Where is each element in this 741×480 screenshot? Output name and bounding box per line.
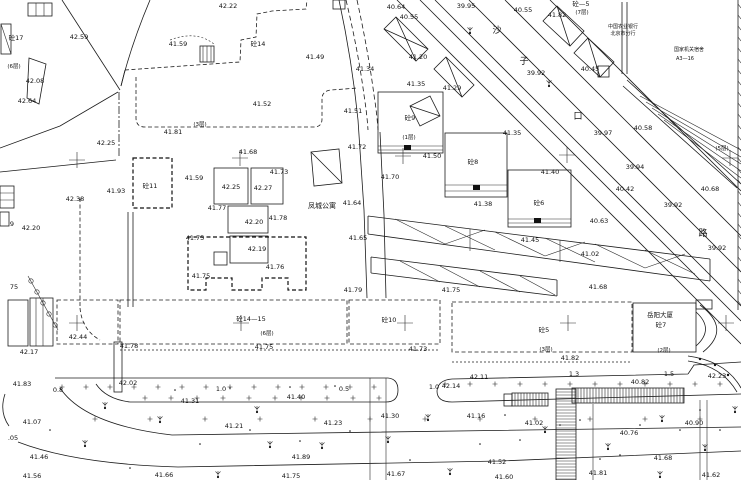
elevation-label: 41.72 xyxy=(348,143,367,151)
elevation-label: 41.59 xyxy=(169,40,188,48)
compound-fence xyxy=(622,2,627,74)
tree-base xyxy=(544,431,546,433)
elevation-label: 40.90 xyxy=(685,419,704,427)
survey-dot xyxy=(334,385,336,387)
tree-base xyxy=(84,445,86,447)
building-label: 砼14—15 xyxy=(236,314,266,323)
misc-label: .05 xyxy=(8,434,18,442)
elevation-label: 41.38 xyxy=(474,200,493,208)
floor-count-note: (5层) xyxy=(715,145,728,152)
misc-label: 9 xyxy=(10,220,14,228)
building-9-outline xyxy=(378,92,443,153)
elevation-label: 41.29 xyxy=(443,84,462,92)
tree-base xyxy=(661,420,663,422)
dimension-label: 1.3 xyxy=(569,370,579,378)
elevation-label: 39.94 xyxy=(626,163,645,171)
elevation-label: 41.89 xyxy=(292,453,311,461)
elevation-label: 41.52 xyxy=(488,458,507,466)
dimension-label: 0.8 xyxy=(53,386,63,394)
floor-count-note: (3层) xyxy=(539,346,552,353)
elevation-label: 39.92 xyxy=(527,69,546,77)
tree-base xyxy=(387,441,389,443)
elevation-label: 41.75 xyxy=(192,272,211,280)
hatch-band xyxy=(572,388,684,403)
place-name-label: A3—16 xyxy=(676,56,694,62)
elevation-label: 42.20 xyxy=(22,224,41,232)
elevation-label: 41.73 xyxy=(409,345,428,353)
elevation-label: 41.40 xyxy=(541,168,560,176)
survey-dot xyxy=(639,424,641,426)
floor-count-note: (3层) xyxy=(193,121,206,128)
survey-map-drawing: 42.2242.5941.5940.6440.5539.9540.5541.82… xyxy=(0,0,741,480)
elevation-label: 42.27 xyxy=(254,184,273,192)
fence-post xyxy=(699,358,701,360)
labels-layer: 42.2242.5941.5940.6440.5539.9540.5541.82… xyxy=(7,0,728,480)
tree-base xyxy=(607,448,609,450)
elevation-label: 41.79 xyxy=(344,286,363,294)
elevation-label: 40.82 xyxy=(631,378,650,386)
elevation-label: 40.76 xyxy=(620,429,639,437)
tree-base xyxy=(256,411,258,413)
elevation-label: 40.45 xyxy=(581,65,600,73)
floor-count-note: (7层) xyxy=(575,9,588,16)
grid-cross-icon xyxy=(722,150,738,166)
road-plus-marks xyxy=(443,382,723,387)
elevation-label: 41.45 xyxy=(521,236,540,244)
elevation-label: 40.55 xyxy=(400,13,419,21)
floor-count-note: (1层) xyxy=(402,134,415,141)
elevation-label: 39.95 xyxy=(457,2,476,10)
elevation-label: 41.75 xyxy=(442,286,461,294)
elevation-label: 40.58 xyxy=(634,124,653,132)
tree-base xyxy=(104,407,106,409)
tree-base xyxy=(321,447,323,449)
elevation-label: 41.68 xyxy=(654,454,673,462)
grid-cross-icon xyxy=(559,147,575,163)
elevation-label: 40.63 xyxy=(590,217,609,225)
survey-dot xyxy=(504,414,506,416)
tree-base xyxy=(548,85,550,87)
elevation-label: 42.08 xyxy=(26,77,45,85)
elevation-label: 41.62 xyxy=(702,471,721,479)
elevation-label: 42.44 xyxy=(69,333,88,341)
elevation-label: 41.66 xyxy=(155,471,174,479)
building-label: 砼6 xyxy=(534,198,545,207)
elevation-label: 41.51 xyxy=(344,107,363,115)
floor-count-note: (6层) xyxy=(260,330,273,337)
elevation-label: 40.68 xyxy=(701,185,720,193)
building-label: 砼9 xyxy=(405,113,416,122)
elevation-label: 41.78 xyxy=(120,342,139,350)
survey-dot xyxy=(699,409,701,411)
elevation-label: 42.25 xyxy=(222,183,241,191)
survey-dot xyxy=(579,419,581,421)
elevation-label: 41.83 xyxy=(13,380,32,388)
elevation-label: 42.38 xyxy=(66,195,85,203)
elevation-label: 40.42 xyxy=(616,185,635,193)
elevation-label: 42.59 xyxy=(70,33,89,41)
elevation-label: 42.22 xyxy=(219,2,238,10)
survey-dot xyxy=(409,459,411,461)
tree-base xyxy=(217,476,219,478)
elevation-label: 41.31 xyxy=(181,397,200,405)
elevation-label: 41.75 xyxy=(186,234,205,242)
tree-base xyxy=(449,473,451,475)
survey-dot xyxy=(679,429,681,431)
elevation-label: 41.77 xyxy=(208,204,227,212)
survey-map-canvas: 42.2242.5941.5940.6440.5539.9540.5541.82… xyxy=(0,0,741,480)
tree-base xyxy=(469,32,471,34)
survey-dot xyxy=(49,429,51,431)
elevation-label: 42.64 xyxy=(18,97,37,105)
building-label: 砼11 xyxy=(143,181,158,190)
corner-structure xyxy=(28,3,52,16)
elevation-label: 39.92 xyxy=(708,244,727,252)
road-plus-marks xyxy=(143,396,382,401)
survey-dot xyxy=(349,430,351,432)
place-name-label: 岳阳大厦 xyxy=(647,310,674,319)
tree-base xyxy=(659,476,661,478)
survey-dot xyxy=(289,386,291,388)
elevation-label: 41.35 xyxy=(407,80,426,88)
survey-dot xyxy=(559,424,561,426)
elevation-label: 41.68 xyxy=(239,148,258,156)
elevation-label: 42.25 xyxy=(97,139,116,147)
elevation-label: 41.59 xyxy=(185,174,204,182)
elevation-label: 41.35 xyxy=(503,129,522,137)
tree-base xyxy=(734,411,736,413)
floor-count-note: (2层) xyxy=(657,347,670,354)
building-label: 砼10 xyxy=(382,315,397,324)
elevation-label: 41.49 xyxy=(306,53,325,61)
elevation-label: 42.19 xyxy=(248,245,267,253)
street-name-char: 子 xyxy=(519,56,528,67)
elevation-label: 40.55 xyxy=(514,6,533,14)
elevation-label: 41.76 xyxy=(266,263,285,271)
elevation-label: 41.81 xyxy=(164,128,183,136)
elevation-label: 41.67 xyxy=(387,470,406,478)
survey-dot xyxy=(174,389,176,391)
elevation-label: 41.02 xyxy=(581,250,600,258)
survey-dot xyxy=(719,429,721,431)
survey-dot xyxy=(299,440,301,442)
place-name-label: 北京市分行 xyxy=(610,30,635,37)
grid-cross-icon xyxy=(560,315,576,331)
elevation-label: 41.07 xyxy=(23,418,42,426)
survey-dot xyxy=(479,443,481,445)
elevation-label: 41.52 xyxy=(253,100,272,108)
survey-dot xyxy=(129,467,131,469)
elevation-label: 42.20 xyxy=(245,218,264,226)
grid-cross-icon xyxy=(718,315,734,331)
building-label: 砼8 xyxy=(468,157,479,166)
elevation-label: 41.64 xyxy=(343,199,362,207)
topleft-parcels-group xyxy=(0,0,358,226)
dimension-label: 1.5 xyxy=(664,370,674,378)
dimension-label: 1.0 xyxy=(216,385,226,393)
place-name-label: 凤城公寓 xyxy=(308,201,336,210)
elevation-label: 41.46 xyxy=(30,453,49,461)
elevation-label: 39.92 xyxy=(664,201,683,209)
grid-cross-icon xyxy=(395,148,411,164)
elevation-label: 41.65 xyxy=(349,234,368,242)
hatch-lines xyxy=(575,388,683,403)
elevation-label: 41.60 xyxy=(495,473,514,480)
elevation-label: 41.81 xyxy=(589,469,608,477)
survey-dot xyxy=(199,443,201,445)
elevation-label: 41.75 xyxy=(255,343,274,351)
survey-dot xyxy=(619,454,621,456)
street-name-char: 路 xyxy=(698,227,707,239)
street-name-char: 沙 xyxy=(492,25,501,36)
ramp-lines xyxy=(640,96,741,178)
apartment-block-group xyxy=(8,158,440,392)
elevation-label: 41.16 xyxy=(467,412,486,420)
street-name-char: 口 xyxy=(573,112,582,122)
elevation-label: 41.34 xyxy=(356,65,375,73)
fence-post xyxy=(727,374,729,376)
elevation-label: 41.78 xyxy=(269,214,288,222)
place-name-label: 国家机关宿舍 xyxy=(674,46,704,53)
hatch-layer xyxy=(512,388,684,480)
elevation-label: 41.75 xyxy=(282,472,301,480)
shed-bands-group xyxy=(368,216,710,296)
elevation-label: 42.11 xyxy=(470,373,489,381)
elevation-label: 41.40 xyxy=(287,393,306,401)
survey-dot xyxy=(519,439,521,441)
elevation-label: 42.02 xyxy=(119,379,138,387)
survey-dot xyxy=(599,458,601,460)
elevation-label: 41.30 xyxy=(381,412,400,420)
fence-post xyxy=(714,364,716,366)
elevation-label: 42.23 xyxy=(708,372,727,380)
misc-label: 75 xyxy=(10,283,18,291)
grid-cross-icon xyxy=(69,315,85,331)
dimension-label: 1.0 xyxy=(429,383,439,391)
elevation-label: 39.97 xyxy=(594,129,613,137)
building-label: 砼14 xyxy=(251,39,266,48)
elevation-label: 41.20 xyxy=(409,53,428,61)
hatch-lines xyxy=(556,392,576,479)
tree-base xyxy=(704,449,706,451)
dimension-label: 0.5 xyxy=(339,385,349,393)
elevation-label: 41.82 xyxy=(548,11,567,19)
elevation-label: 41.56 xyxy=(23,472,42,480)
tree-base xyxy=(269,446,271,448)
survey-dot xyxy=(249,429,251,431)
elevation-label: 42.17 xyxy=(20,348,39,356)
elevation-label: 41.73 xyxy=(270,168,289,176)
building-14-15-outline xyxy=(120,300,347,344)
building-label: 砼—5 xyxy=(572,0,589,8)
building-label: 砼5 xyxy=(539,325,550,334)
elevation-label: 41.50 xyxy=(423,152,442,160)
elevation-label: 41.70 xyxy=(381,173,400,181)
elevation-label: 41.02 xyxy=(525,419,544,427)
building-label: 砼17 xyxy=(9,33,24,42)
elevation-label: 41.68 xyxy=(589,283,608,291)
place-name-label: 砼7 xyxy=(656,320,667,329)
tree-base xyxy=(159,421,161,423)
elevation-label: 41.23 xyxy=(324,419,343,427)
floor-count-note: (6层) xyxy=(7,63,20,70)
elevation-label: 40.64 xyxy=(387,3,406,11)
elevation-label: 41.93 xyxy=(107,187,126,195)
elevation-label: 41.82 xyxy=(561,354,580,362)
place-name-label: 中国农业银行 xyxy=(608,23,638,30)
grid-cross-icon xyxy=(69,152,85,168)
grid-cross-icon xyxy=(397,315,413,331)
elevation-label: 41.21 xyxy=(225,422,244,430)
elevation-label: 42.14 xyxy=(442,382,461,390)
